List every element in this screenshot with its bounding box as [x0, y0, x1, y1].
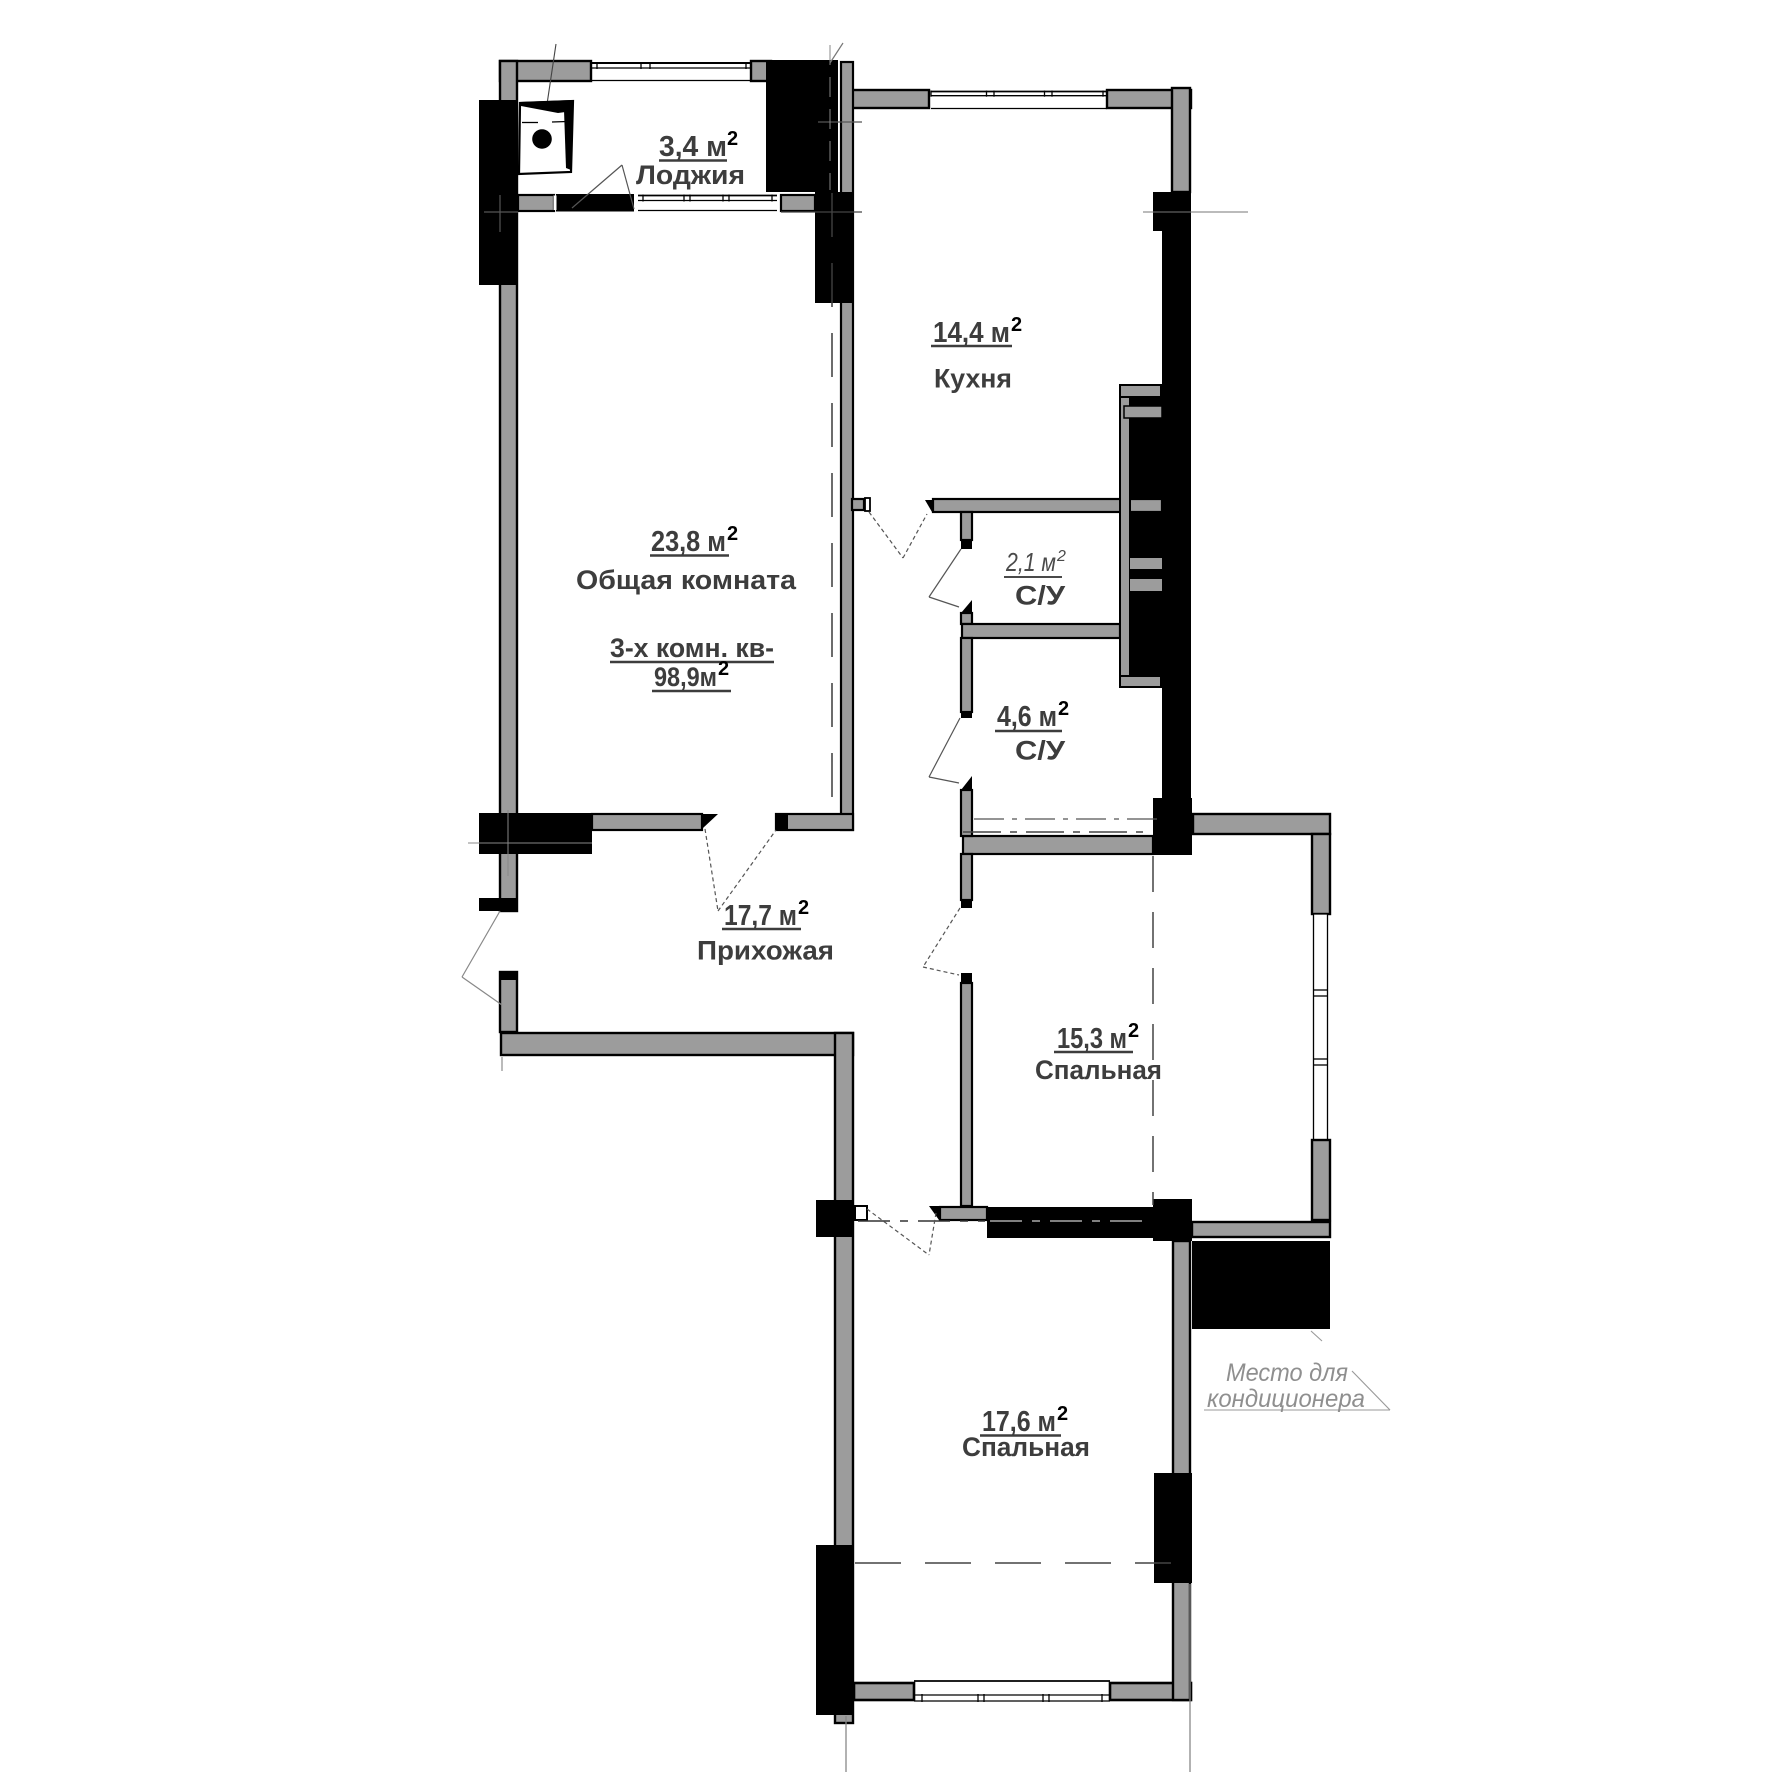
svg-text:2: 2 [1058, 698, 1069, 720]
svg-text:15,3 м: 15,3 м [1057, 1023, 1127, 1055]
svg-text:Спальная: Спальная [1035, 1055, 1162, 1085]
svg-text:3-х комн. кв-: 3-х комн. кв- [610, 633, 774, 663]
svg-text:Место для: Место для [1226, 1359, 1348, 1387]
svg-text:14,4 м: 14,4 м [933, 317, 1010, 349]
svg-text:2: 2 [1128, 1020, 1139, 1042]
svg-text:С/У: С/У [1015, 736, 1066, 766]
svg-text:2: 2 [727, 128, 738, 150]
svg-text:2: 2 [1011, 314, 1022, 336]
svg-text:2,1 м: 2,1 м [1005, 547, 1056, 577]
svg-text:2: 2 [1057, 1403, 1068, 1425]
svg-text:Лоджия: Лоджия [636, 160, 745, 190]
svg-text:4,6 м: 4,6 м [997, 701, 1057, 733]
svg-text:2: 2 [1056, 548, 1066, 565]
svg-text:3,4 м: 3,4 м [659, 131, 727, 163]
svg-text:2: 2 [798, 897, 809, 919]
svg-text:17,7 м: 17,7 м [724, 900, 797, 932]
svg-text:Кухня: Кухня [934, 364, 1012, 394]
svg-text:Общая комната: Общая комната [576, 565, 797, 595]
svg-text:23,8 м: 23,8 м [651, 526, 726, 558]
svg-text:98,9м: 98,9м [654, 662, 717, 692]
svg-text:С/У: С/У [1015, 581, 1066, 611]
svg-text:Прихожая: Прихожая [697, 936, 834, 966]
svg-text:2: 2 [727, 523, 738, 545]
svg-text:Спальная: Спальная [962, 1432, 1090, 1462]
svg-text:кондиционера: кондиционера [1207, 1385, 1365, 1413]
svg-text:2: 2 [718, 658, 729, 680]
